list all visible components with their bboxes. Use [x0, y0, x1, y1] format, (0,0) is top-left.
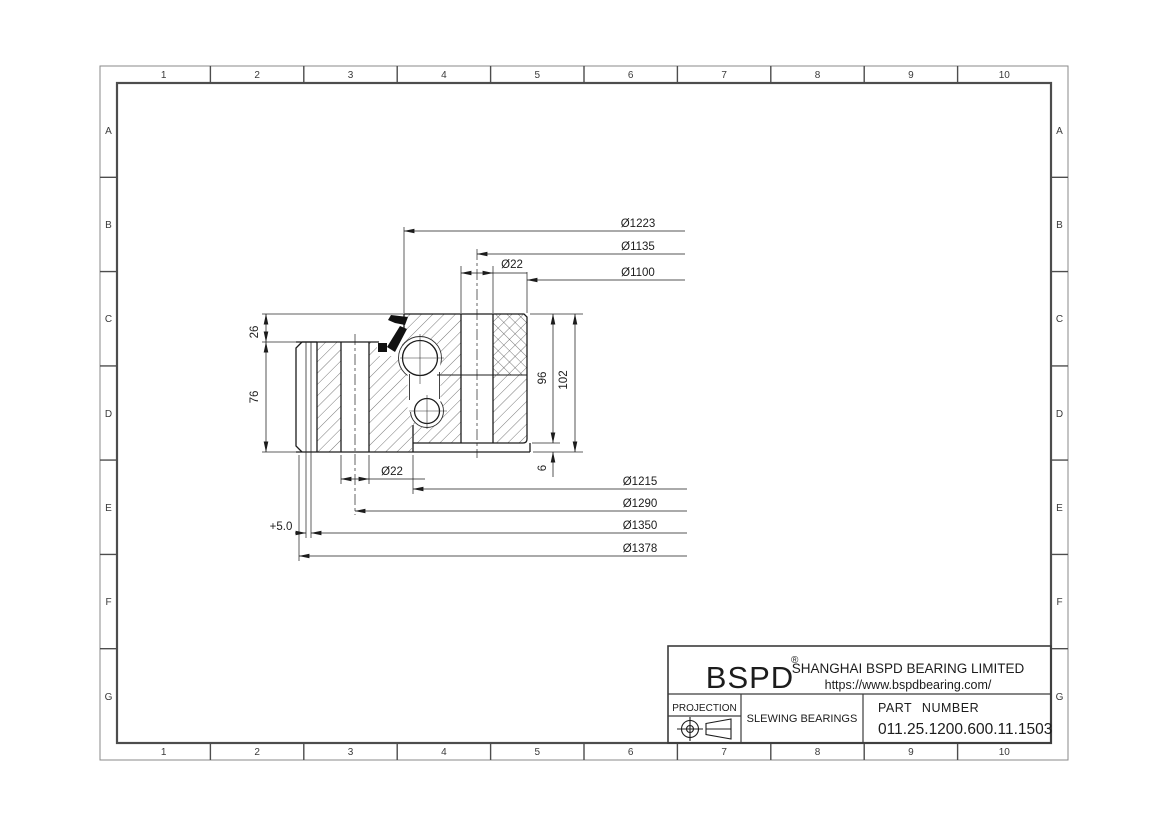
dim-label-76: 76 — [249, 391, 261, 404]
inner-ring-upper-half-hatch — [493, 314, 527, 375]
part-number-value: 011.25.1200.600.11.1503 — [878, 721, 1052, 738]
dim-label-1215: Ø1215 — [623, 476, 658, 488]
first-angle-projection-icon — [677, 717, 731, 741]
sheet-border: 1 2 3 4 5 6 7 8 9 10 1 2 3 4 5 6 7 8 9 1… — [100, 66, 1068, 760]
dim-label-1223: Ø1223 — [621, 218, 656, 230]
col-label: 8 — [815, 747, 821, 758]
inner-border — [117, 83, 1051, 743]
outer-ring-hatch-left — [317, 342, 341, 452]
row-label: C — [105, 314, 112, 325]
col-label: 10 — [999, 747, 1011, 758]
dim-label-1100: Ø1100 — [621, 267, 655, 279]
row-label: C — [1056, 314, 1063, 325]
row-label: E — [105, 503, 112, 514]
part-number-label: PART NUMBER — [878, 701, 979, 715]
col-label: 6 — [628, 747, 634, 758]
col-label: 4 — [441, 70, 447, 81]
row-labels-left: A B C D E F G — [105, 126, 113, 703]
brand-logo: BSPD — [706, 660, 794, 695]
col-label: 6 — [628, 70, 634, 81]
col-label: 3 — [348, 747, 354, 758]
dim-label-1378: Ø1378 — [623, 543, 658, 555]
dim-label-22-bottom: Ø22 — [381, 466, 403, 478]
bearing-cross-section — [296, 314, 530, 452]
dim-label-102: 102 — [558, 370, 570, 389]
grid-ticks — [100, 66, 1068, 760]
dim-label-1350: Ø1350 — [623, 520, 658, 532]
col-label: 3 — [348, 70, 354, 81]
col-label: 2 — [254, 747, 260, 758]
col-label: 10 — [999, 70, 1011, 81]
row-label: A — [105, 126, 112, 137]
dim-label-22-top: Ø22 — [501, 259, 523, 271]
col-label: 8 — [815, 70, 821, 81]
projection-label: PROJECTION — [672, 703, 736, 714]
col-label: 5 — [535, 70, 541, 81]
col-label: 5 — [535, 747, 541, 758]
drawing-sheet: 1 2 3 4 5 6 7 8 9 10 1 2 3 4 5 6 7 8 9 1… — [0, 0, 1170, 827]
col-label: 7 — [721, 70, 727, 81]
dim-label-offset: +5.0 — [270, 521, 293, 533]
row-label: B — [105, 220, 112, 231]
column-labels-bottom: 1 2 3 4 5 6 7 8 9 10 — [161, 747, 1010, 758]
outer-ring-left-edge — [296, 342, 317, 452]
row-label: E — [1056, 503, 1063, 514]
col-label: 7 — [721, 747, 727, 758]
row-label: G — [1056, 692, 1064, 703]
dim-label-26: 26 — [249, 326, 261, 339]
row-label: G — [105, 692, 113, 703]
col-label: 9 — [908, 70, 914, 81]
company-name: SHANGHAI BSPD BEARING LIMITED — [792, 661, 1025, 676]
engineering-drawing: 1 2 3 4 5 6 7 8 9 10 1 2 3 4 5 6 7 8 9 1… — [0, 0, 1170, 827]
company-url: https://www.bspdbearing.com/ — [825, 678, 992, 692]
row-label: D — [105, 409, 112, 420]
col-label: 1 — [161, 747, 167, 758]
row-label: A — [1056, 126, 1063, 137]
col-label: 1 — [161, 70, 167, 81]
row-label: D — [1056, 409, 1063, 420]
col-label: 2 — [254, 70, 260, 81]
column-labels-top: 1 2 3 4 5 6 7 8 9 10 — [161, 70, 1010, 81]
row-label: F — [1056, 597, 1062, 608]
outer-border — [100, 66, 1068, 760]
dim-label-1135: Ø1135 — [621, 241, 655, 253]
dim-label-6: 6 — [537, 465, 549, 471]
col-label: 9 — [908, 747, 914, 758]
row-labels-right: A B C D E F G — [1056, 126, 1064, 703]
row-label: B — [1056, 220, 1063, 231]
product-type: SLEWING BEARINGS — [747, 713, 858, 725]
dim-label-96: 96 — [537, 372, 549, 385]
col-label: 4 — [441, 747, 447, 758]
row-label: F — [105, 597, 111, 608]
dim-label-1290: Ø1290 — [623, 498, 658, 510]
title-block: BSPD ® SHANGHAI BSPD BEARING LIMITED htt… — [668, 646, 1052, 743]
